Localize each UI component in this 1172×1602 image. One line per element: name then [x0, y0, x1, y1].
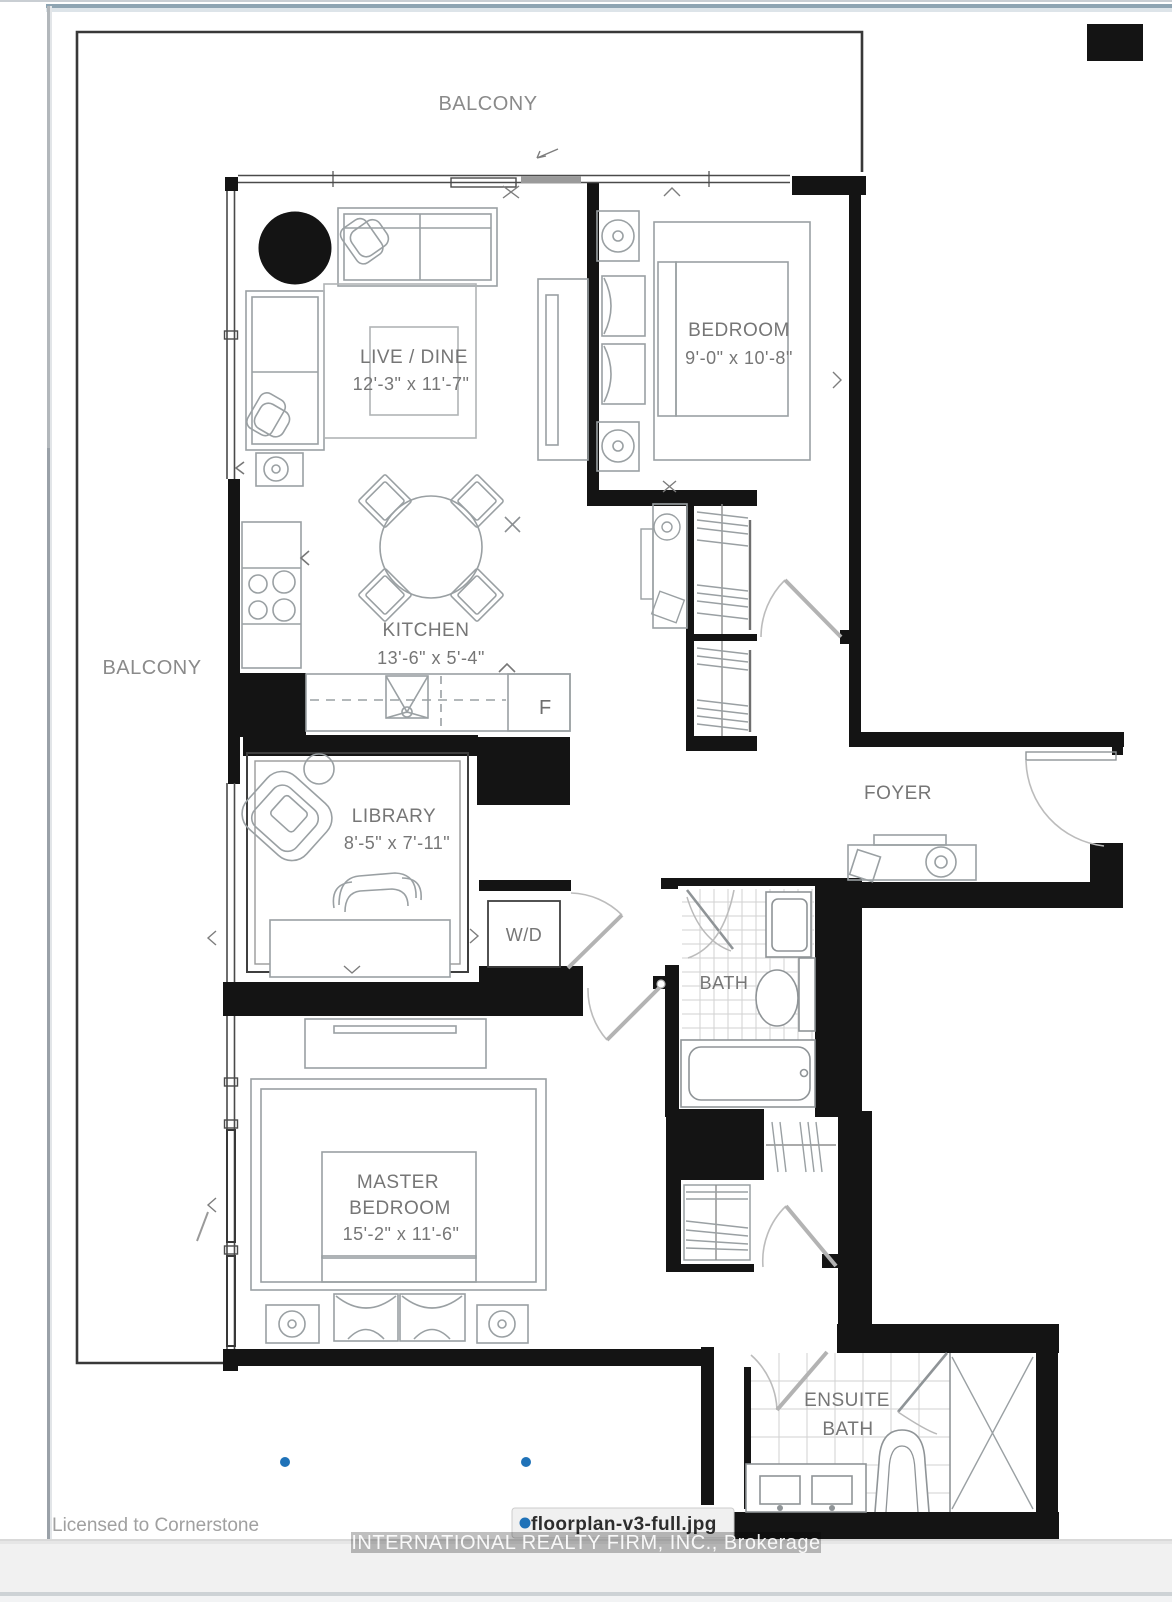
svg-text:BATH: BATH — [822, 1419, 873, 1440]
svg-text:12'-3" x 11'-7": 12'-3" x 11'-7" — [353, 374, 470, 394]
svg-text:8'-5" x 7'-11": 8'-5" x 7'-11" — [344, 833, 450, 853]
svg-text:FOYER: FOYER — [864, 783, 932, 804]
svg-text:BALCONY: BALCONY — [438, 93, 537, 115]
svg-text:BEDROOM: BEDROOM — [349, 1198, 451, 1219]
svg-text:INTERNATIONAL REALTY FIRM, INC: INTERNATIONAL REALTY FIRM, INC., Brokera… — [351, 1532, 820, 1554]
svg-text:MASTER: MASTER — [357, 1172, 439, 1193]
svg-text:BALCONY: BALCONY — [102, 657, 201, 679]
svg-text:LIBRARY: LIBRARY — [352, 806, 436, 827]
svg-text:BEDROOM: BEDROOM — [688, 320, 790, 341]
svg-text:KITCHEN: KITCHEN — [383, 620, 470, 641]
svg-text:W/D: W/D — [506, 925, 543, 945]
svg-text:LIVE / DINE: LIVE / DINE — [360, 347, 468, 368]
svg-text:15'-2" x 11'-6": 15'-2" x 11'-6" — [343, 1224, 460, 1244]
svg-text:BATH: BATH — [700, 973, 749, 993]
svg-text:9'-0" x 10'-8": 9'-0" x 10'-8" — [685, 348, 793, 368]
svg-text:13'-6" x 5'-4": 13'-6" x 5'-4" — [377, 648, 485, 668]
svg-text:F: F — [539, 697, 551, 719]
svg-text:ENSUITE: ENSUITE — [804, 1390, 890, 1411]
svg-text:Licensed to Cornerstone: Licensed to Cornerstone — [52, 1515, 259, 1536]
